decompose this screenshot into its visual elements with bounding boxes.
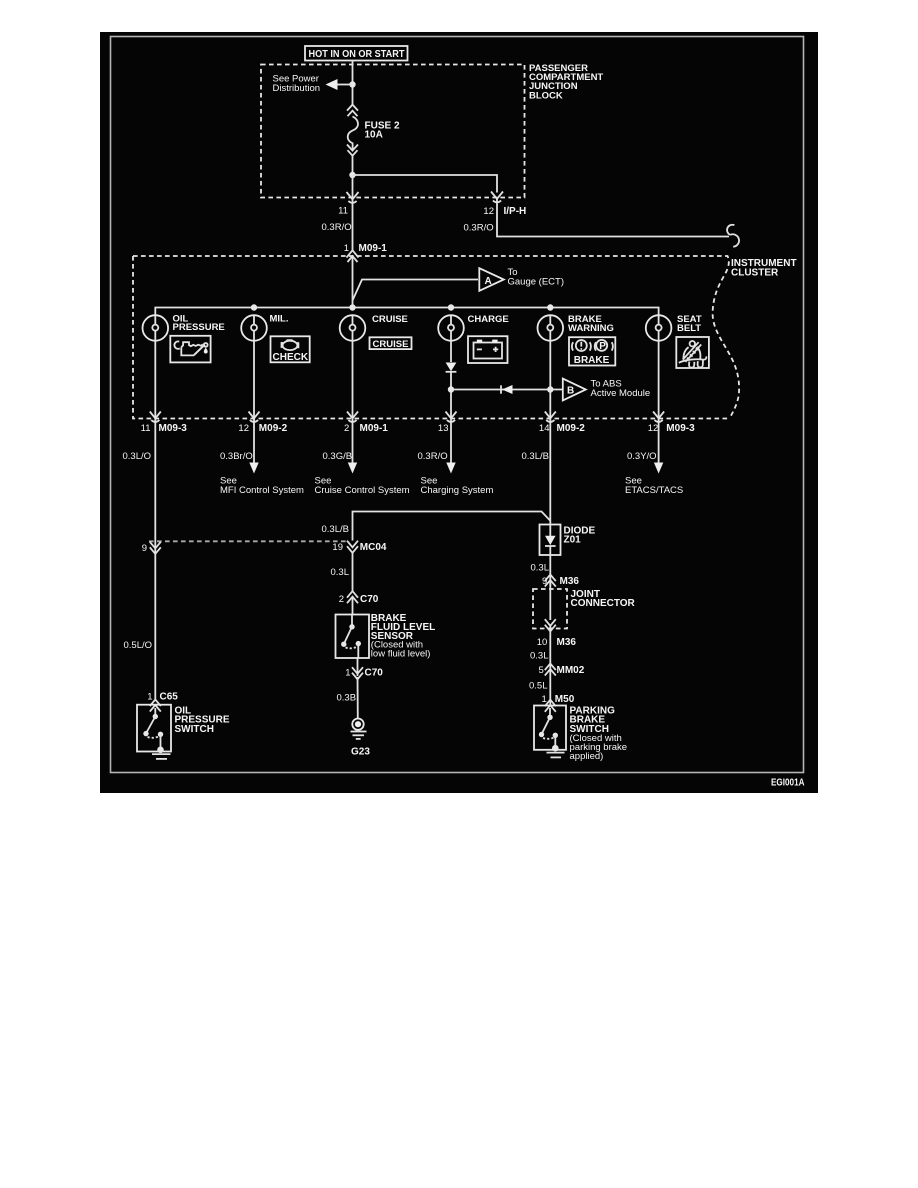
svg-text:BELT: BELT (677, 323, 701, 334)
svg-text:M09-2: M09-2 (259, 423, 288, 434)
svg-text:0.5L/O: 0.5L/O (124, 640, 153, 651)
svg-text:2: 2 (339, 594, 344, 605)
svg-text:11: 11 (338, 206, 348, 217)
svg-text:0.5L: 0.5L (529, 680, 548, 691)
svg-text:13: 13 (438, 423, 449, 434)
svg-text:12: 12 (648, 423, 659, 434)
svg-text:M36: M36 (557, 637, 577, 648)
svg-text:ETACS/TACS: ETACS/TACS (625, 485, 683, 496)
svg-text:Cruise Control System: Cruise Control System (315, 485, 410, 496)
svg-text:2: 2 (344, 423, 349, 434)
svg-text:1: 1 (345, 668, 350, 679)
svg-text:1: 1 (344, 243, 349, 254)
svg-text:Gauge (ECT): Gauge (ECT) (508, 277, 565, 288)
svg-text:HOT IN ON OR START: HOT IN ON OR START (309, 49, 405, 60)
svg-text:MC04: MC04 (360, 542, 387, 553)
svg-text:10A: 10A (365, 130, 383, 141)
svg-text:0.3R/O: 0.3R/O (418, 451, 448, 462)
svg-text:M09-2: M09-2 (557, 423, 586, 434)
svg-text:0.3L: 0.3L (530, 650, 549, 661)
svg-text:M09-3: M09-3 (666, 423, 695, 434)
svg-text:12: 12 (238, 423, 249, 434)
svg-text:19: 19 (332, 542, 343, 553)
svg-text:P: P (599, 341, 606, 352)
svg-text:0.3L/O: 0.3L/O (123, 451, 152, 462)
svg-text:CHARGE: CHARGE (468, 314, 509, 325)
svg-text:0.3G/B: 0.3G/B (323, 451, 353, 462)
svg-text:MIL.: MIL. (270, 314, 289, 325)
svg-text:5: 5 (539, 665, 544, 676)
svg-text:CONNECTOR: CONNECTOR (571, 598, 636, 609)
svg-text:1: 1 (147, 692, 152, 703)
svg-text:BLOCK: BLOCK (529, 90, 563, 101)
svg-text:11: 11 (141, 423, 151, 434)
svg-text:0.3R/O: 0.3R/O (464, 222, 494, 233)
svg-text:14: 14 (539, 423, 550, 434)
svg-text:I/P-H: I/P-H (504, 206, 527, 217)
svg-text:M09-1: M09-1 (360, 423, 389, 434)
svg-text:0.3Br/O: 0.3Br/O (220, 451, 253, 462)
svg-text:CLUSTER: CLUSTER (731, 267, 779, 278)
svg-text:9: 9 (542, 576, 547, 587)
svg-text:Active Module: Active Module (591, 388, 651, 399)
svg-text:G23: G23 (351, 747, 370, 758)
svg-text:MFI Control System: MFI Control System (220, 485, 304, 496)
svg-text:Z01: Z01 (564, 535, 582, 546)
svg-text:M09-1: M09-1 (359, 243, 388, 254)
svg-text:SWITCH: SWITCH (175, 724, 214, 735)
svg-text:MM02: MM02 (557, 665, 585, 676)
svg-text:PRESSURE: PRESSURE (173, 322, 225, 333)
svg-text:B: B (567, 386, 574, 397)
svg-text:applied): applied) (570, 751, 604, 762)
svg-text:low fluid level): low fluid level) (371, 649, 431, 660)
svg-text:CRUISE: CRUISE (372, 314, 408, 325)
svg-text:M09-3: M09-3 (159, 423, 188, 434)
svg-text:Charging System: Charging System (421, 485, 494, 496)
svg-text:M50: M50 (555, 694, 575, 705)
svg-text:9: 9 (142, 543, 147, 554)
svg-text:CHECK: CHECK (273, 352, 309, 363)
svg-text:0.3L/B: 0.3L/B (522, 451, 549, 462)
svg-text:0.3B: 0.3B (337, 693, 357, 704)
svg-text:0.3L: 0.3L (331, 567, 350, 578)
svg-text:CRUISE: CRUISE (373, 339, 409, 350)
svg-text:C70: C70 (365, 668, 384, 679)
svg-text:0.3R/O: 0.3R/O (322, 222, 352, 233)
svg-text:C65: C65 (160, 692, 179, 703)
svg-text:10: 10 (537, 637, 548, 648)
svg-text:0.3Y/O: 0.3Y/O (627, 451, 657, 462)
svg-text:C70: C70 (360, 594, 379, 605)
svg-text:EGI001A: EGI001A (771, 778, 805, 789)
svg-text:0.3L: 0.3L (531, 562, 550, 573)
svg-text:WARNING: WARNING (568, 323, 614, 334)
svg-text:M36: M36 (560, 576, 580, 587)
svg-text:BRAKE: BRAKE (574, 355, 610, 366)
svg-text:A: A (485, 276, 492, 287)
svg-text:12: 12 (483, 206, 494, 217)
svg-text:Distribution: Distribution (273, 83, 321, 94)
svg-text:0.3L/B: 0.3L/B (322, 524, 349, 535)
